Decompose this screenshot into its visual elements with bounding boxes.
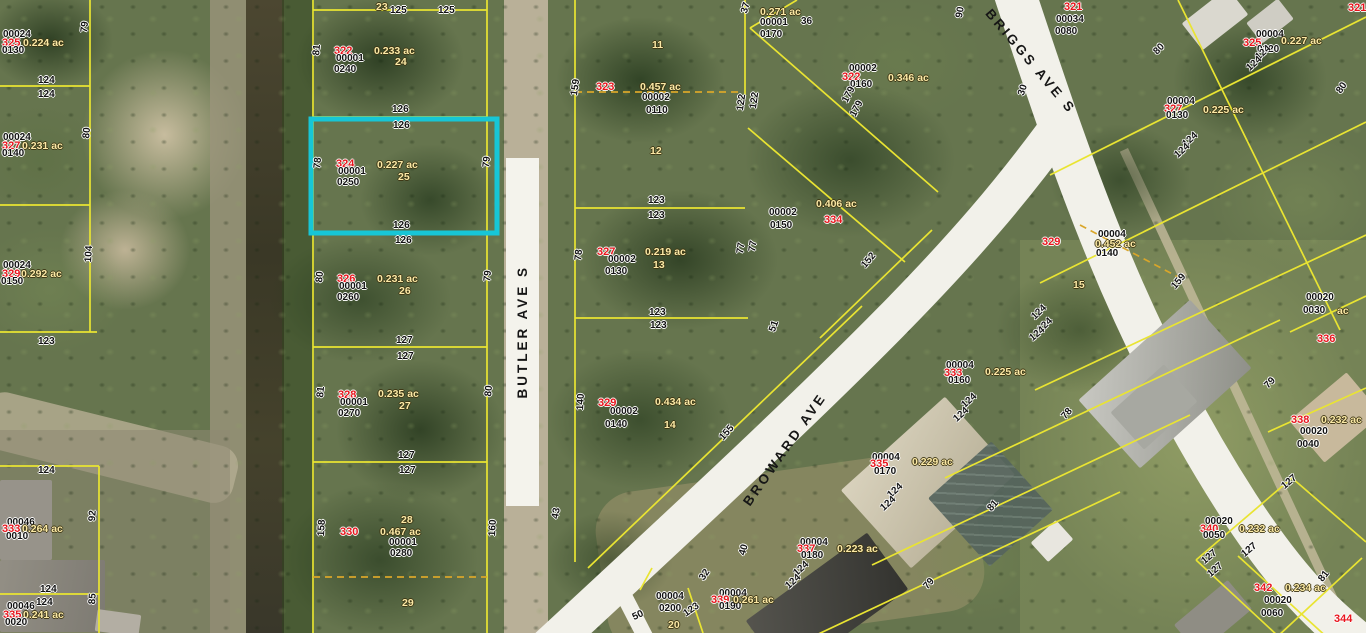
street-label-butler: BUTLER AVE S (515, 265, 530, 399)
p323e-number: 323 (596, 82, 614, 93)
dim: 126 (393, 121, 410, 131)
p0200-book: 00004 (656, 592, 684, 602)
dim: 124 (38, 90, 55, 100)
dim: 36 (801, 17, 812, 27)
p334-book: 00002 (769, 208, 797, 218)
parcel-boundaries (0, 0, 1366, 633)
dim: 124 (38, 76, 55, 86)
p0170w-book: 00001 (760, 18, 788, 28)
p329e2-lot: 15 (1073, 280, 1085, 291)
p335e-page: 0170 (874, 467, 896, 477)
dim: 127 (399, 466, 416, 476)
dim: 79 (80, 21, 91, 33)
p327e-lot: 13 (653, 260, 665, 271)
p322w-acreage: 0.233 ac (374, 46, 415, 57)
p0200-page: 0200 (659, 604, 681, 614)
p335e-acreage: 0.229 ac (912, 457, 953, 468)
p325e-book: 00004 (1256, 30, 1284, 40)
p336-acreage: ac (1337, 306, 1349, 317)
p322w-page: 0240 (334, 65, 356, 75)
p321-book: 00034 (1056, 15, 1084, 25)
p327e2-acreage: 0.225 ac (1203, 105, 1244, 116)
p336-page: 0030 (1303, 306, 1325, 316)
p344-number: 344 (1334, 614, 1352, 625)
dim: 80 (82, 127, 93, 139)
p333e-page: 0160 (948, 376, 970, 386)
dim: 43 (551, 507, 563, 520)
p322e-book: 00002 (849, 64, 877, 74)
dim: 158 (317, 519, 328, 536)
p325w-page: 0130 (2, 46, 24, 56)
p323e-page: 0110 (646, 106, 668, 116)
p327w-acreage: 0.231 ac (22, 141, 63, 152)
p330w-lot: 28 (401, 515, 413, 526)
p324-page: 0250 (337, 178, 359, 188)
p340-acreage: 0.232 ac (1239, 524, 1280, 535)
p329e-lot: 14 (664, 420, 676, 431)
p329e2-number: 329 (1042, 237, 1060, 248)
p333e-acreage: 0.225 ac (985, 367, 1026, 378)
p323e-acreage: 0.457 ac (640, 82, 681, 93)
p327w-page: 0140 (2, 149, 24, 159)
dim: 79 (482, 156, 493, 168)
dim: 81 (316, 386, 327, 398)
p326w-book: 00001 (339, 282, 367, 292)
p338-acreage: 0.232 ac (1321, 415, 1362, 426)
p337e-acreage: 0.223 ac (837, 544, 878, 555)
dim: 80 (315, 271, 326, 283)
p342-acreage: 0.234 ac (1285, 583, 1326, 594)
dim: 126 (392, 105, 409, 115)
dim: 85 (88, 593, 99, 605)
p327e-book: 00002 (608, 255, 636, 265)
p338-number: 338 (1291, 415, 1309, 426)
p0200-lot: 20 (668, 620, 680, 631)
dim: 123 (648, 211, 665, 221)
dim: 78 (574, 249, 585, 261)
p338-page: 0040 (1297, 440, 1319, 450)
p329e-acreage: 0.434 ac (655, 397, 696, 408)
lot-number: 29 (402, 598, 414, 609)
parcel-lines-layer (0, 0, 1366, 633)
p329e2-page: 0140 (1096, 249, 1118, 259)
dim: 81 (312, 44, 323, 56)
p0170w-page: 0170 (760, 30, 782, 40)
p322w-book: 00001 (336, 54, 364, 64)
p334-page: 0150 (770, 221, 792, 231)
p325e-acreage: 0.227 ac (1281, 36, 1322, 47)
dim: 160 (488, 519, 499, 536)
p325w-acreage: 0.224 ac (23, 38, 64, 49)
dim: 90 (955, 6, 967, 19)
dim: 140 (576, 393, 587, 410)
dim: 80 (484, 385, 495, 397)
p327e2-page: 0130 (1166, 111, 1188, 121)
dim: 123 (649, 308, 666, 318)
street-band-butler: BUTLER AVE S (506, 158, 539, 506)
p328w-book: 00001 (340, 398, 368, 408)
p324-book: 00001 (338, 167, 366, 177)
p333w-page: 0010 (6, 532, 28, 542)
dim: 124 (38, 466, 55, 476)
p326w-lot: 26 (399, 286, 411, 297)
p342-number: 342 (1254, 583, 1272, 594)
p321c-number: 321 (1348, 3, 1366, 14)
p324-lot: 25 (398, 172, 410, 183)
p336-number: 336 (1317, 334, 1335, 345)
dim: 77 (736, 242, 747, 254)
p322e-acreage: 0.346 ac (888, 73, 929, 84)
p327e-acreage: 0.219 ac (645, 247, 686, 258)
dim: 125 (390, 6, 407, 16)
p326w-acreage: 0.231 ac (377, 274, 418, 285)
dim: 127 (397, 352, 414, 362)
parcel-map-canvas[interactable]: BUTLER AVE S BRIGGS AVE S BROWARD AVE 00… (0, 0, 1366, 633)
dim: 78 (313, 157, 324, 169)
p323e-lot: 11 (652, 40, 663, 51)
dim: 123 (648, 196, 665, 206)
dim: 123 (38, 337, 55, 347)
p335w-acreage: 0.241 ac (23, 610, 64, 621)
p330w-book: 00001 (389, 538, 417, 548)
dim: 124 (36, 598, 53, 608)
p327e-page: 0130 (605, 267, 627, 277)
p328w-page: 0270 (338, 409, 360, 419)
p329w-acreage: 0.292 ac (21, 269, 62, 280)
p329w-page: 0150 (1, 277, 23, 287)
p330w-number: 330 (340, 527, 358, 538)
p329e-book: 00002 (610, 407, 638, 417)
lot-number: 12 (650, 146, 662, 157)
p326w-page: 0260 (337, 293, 359, 303)
dim: 126 (395, 236, 412, 246)
p342-book: 00020 (1264, 596, 1292, 606)
lot-number: 23 (376, 2, 388, 13)
dim: 77 (748, 240, 759, 252)
p329e-page: 0140 (605, 420, 627, 430)
p334-acreage: 0.406 ac (816, 199, 857, 210)
dim: 123 (650, 321, 667, 331)
dim: 92 (88, 510, 99, 522)
dim: 126 (393, 221, 410, 231)
dim: 127 (396, 336, 413, 346)
dim: 79 (483, 270, 494, 282)
dim: 104 (84, 245, 95, 262)
p342-page: 0060 (1261, 609, 1283, 619)
p330w-acreage: 0.467 ac (380, 527, 421, 538)
p338-book: 00020 (1300, 427, 1328, 437)
p323e-book: 00002 (642, 93, 670, 103)
dim: 125 (438, 6, 455, 16)
p0170w-acreage: 0.271 ac (760, 7, 801, 18)
p334-number: 334 (824, 215, 842, 226)
dim: 124 (40, 585, 57, 595)
p339e-acreage: 0.261 ac (733, 595, 774, 606)
p321-page: 0080 (1055, 27, 1077, 37)
p336-book: 00020 (1306, 293, 1334, 303)
p324-acreage: 0.227 ac (377, 160, 418, 171)
p328w-acreage: 0.235 ac (378, 389, 419, 400)
p330w-page: 0280 (390, 549, 412, 559)
p335w-page: 0020 (5, 618, 27, 628)
p322w-lot: 24 (395, 57, 407, 68)
p340-page: 0050 (1203, 531, 1225, 541)
p321-number: 321 (1064, 2, 1082, 13)
p328w-lot: 27 (399, 401, 411, 412)
p327e2-book: 00004 (1167, 97, 1195, 107)
dim: 127 (398, 451, 415, 461)
